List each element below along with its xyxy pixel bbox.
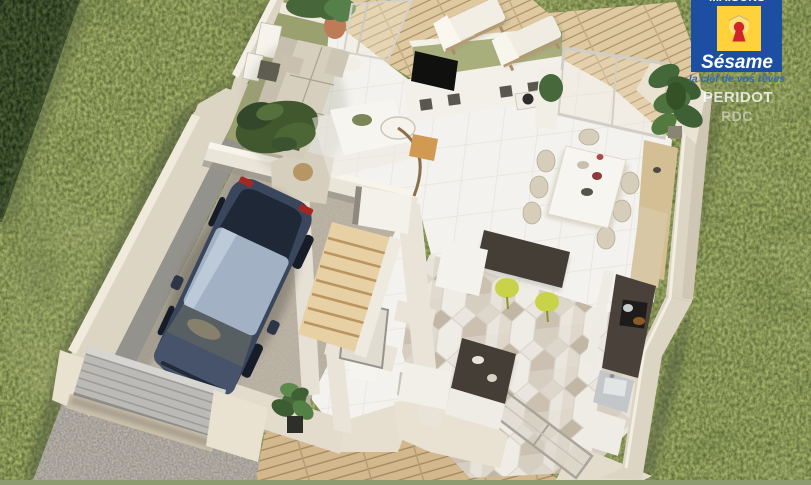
svg-text:MAISONS: MAISONS [709,0,765,4]
svg-text:Sésame: Sésame [701,52,773,73]
svg-text:PERIDOT: PERIDOT [703,89,773,106]
svg-text:la clef de vos rêves: la clef de vos rêves [689,73,785,85]
svg-text:RDC: RDC [721,108,753,124]
